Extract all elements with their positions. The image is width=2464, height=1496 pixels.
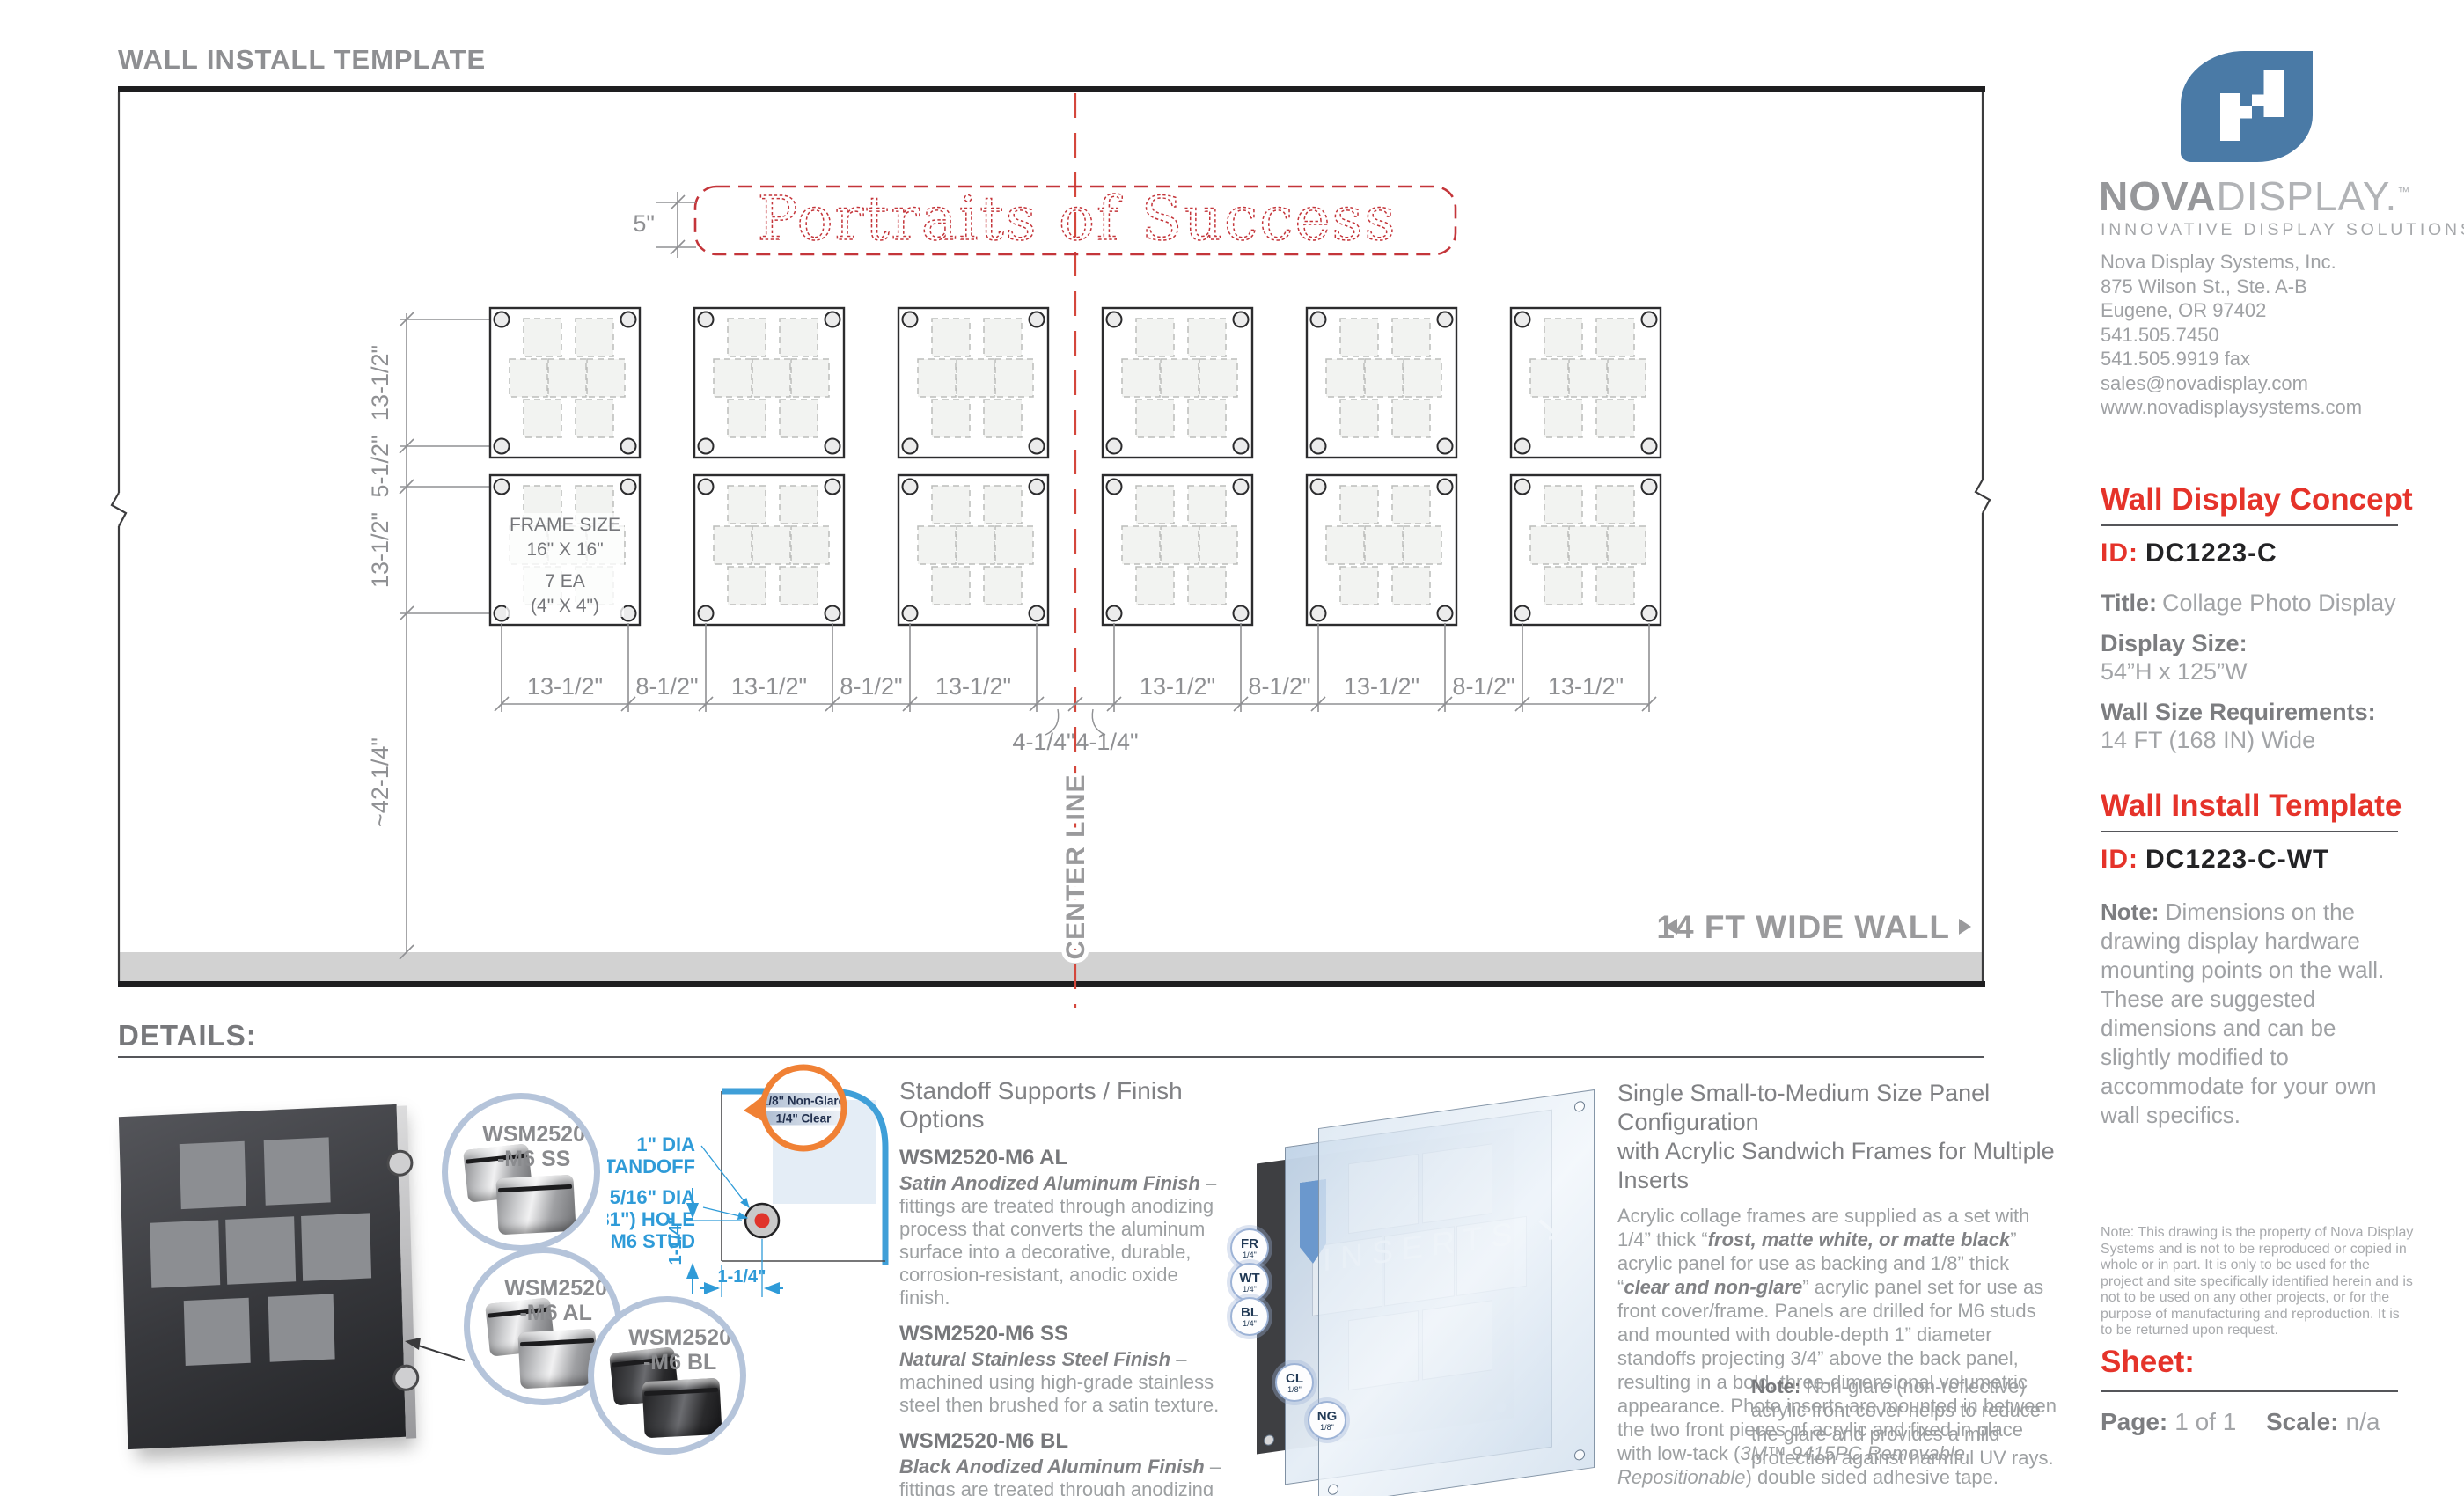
photo-insert xyxy=(932,567,970,605)
scale-indicator: Scale:n/a xyxy=(2266,1408,2380,1436)
photo-insert xyxy=(714,359,752,397)
dimension-label: 8-1/2" xyxy=(635,673,698,700)
standoff-callout: 1" DIA xyxy=(636,1133,695,1155)
front-panel xyxy=(1318,1089,1595,1496)
dimension-label: 4-1/4" xyxy=(1075,729,1138,755)
mounting-hole xyxy=(1234,312,1249,327)
collage-frame xyxy=(898,475,1048,625)
mounting-hole xyxy=(1107,312,1122,327)
mounting-hole xyxy=(1107,606,1122,621)
dimension-label: 13-1/2" xyxy=(1344,673,1419,700)
photo-insert xyxy=(1136,486,1174,524)
photo-insert xyxy=(752,526,790,564)
photo-insert xyxy=(1608,526,1646,564)
collage-frame xyxy=(1103,475,1252,625)
pointer-arrow xyxy=(396,1329,475,1373)
photo-insert xyxy=(932,486,970,524)
brand-tagline: INNOVATIVE DISPLAY SOLUTIONS xyxy=(2101,220,2464,240)
photo-insert xyxy=(1188,486,1226,524)
mounting-hole xyxy=(621,439,636,454)
break-mark-right xyxy=(1976,480,1990,513)
mounting-hole xyxy=(495,312,510,327)
product-code: WSM2520-M6 SS xyxy=(899,1322,1227,1346)
collage-frame xyxy=(694,308,844,458)
mounting-hole xyxy=(1642,606,1657,621)
mounting-hole xyxy=(1311,312,1326,327)
sidebar-divider xyxy=(2064,48,2064,1487)
address-line: 875 Wilson St., Ste. A-B xyxy=(2101,275,2362,299)
photo-insert xyxy=(728,567,766,605)
standoff-cap xyxy=(386,1149,414,1177)
sheet-heading: Sheet: xyxy=(2101,1345,2195,1380)
photo-insert xyxy=(1596,486,1634,524)
photo-insert xyxy=(791,359,829,397)
photo-insert xyxy=(510,359,547,397)
photo-insert xyxy=(1404,526,1441,564)
wall-width-label-group: 14 FT WIDE WALL xyxy=(1656,909,1971,945)
concept-id: ID:DC1223-C xyxy=(2101,539,2277,568)
photo-insert xyxy=(780,319,818,356)
photo-insert xyxy=(1340,319,1378,356)
company-address: Nova Display Systems, Inc. 875 Wilson St… xyxy=(2101,250,2362,420)
photo-insert xyxy=(1608,359,1646,397)
photo-insert xyxy=(932,400,970,437)
banner-text: Portraits of Success xyxy=(758,185,1397,254)
banner-group: Portraits of Success 5" xyxy=(633,185,1456,258)
collage-frame xyxy=(898,308,1048,458)
mounting-hole xyxy=(1642,439,1657,454)
photo-insert xyxy=(1122,526,1160,564)
photo-insert xyxy=(1122,359,1160,397)
website-link[interactable]: www.novadisplaysystems.com xyxy=(2101,395,2362,420)
email-link[interactable]: sales@novadisplay.com xyxy=(2101,371,2362,396)
mounting-hole xyxy=(699,606,714,621)
address-line: Eugene, OR 97402 xyxy=(2101,298,2362,323)
layer-badge-CL: CL1/8" xyxy=(1275,1363,1314,1402)
photo-insert xyxy=(1392,400,1430,437)
photo-insert xyxy=(1340,400,1378,437)
dimension-label: 13-1/2" xyxy=(1140,673,1215,700)
photo-insert xyxy=(752,359,790,397)
dimension-label: 13-1/2" xyxy=(527,673,603,700)
mounting-hole xyxy=(699,480,714,495)
mounting-hole xyxy=(1234,480,1249,495)
bubble-label: WSM2520 -M6 SS xyxy=(482,1122,585,1171)
mounting-hole xyxy=(1107,439,1122,454)
dim-horizontal: 1-1/4" xyxy=(717,1267,766,1287)
layer-badge-BL: BL1/4" xyxy=(1230,1297,1269,1336)
photo-insert xyxy=(1544,486,1582,524)
collage-frame xyxy=(1307,308,1456,458)
legal-note: Note: This drawing is the property of No… xyxy=(2101,1225,2414,1339)
mounting-hole xyxy=(1311,439,1326,454)
photo-insert xyxy=(918,526,956,564)
photo-insert xyxy=(728,319,766,356)
concept-heading: Wall Display Concept xyxy=(2101,482,2413,517)
collage-frame xyxy=(1307,475,1456,625)
mounting-hole xyxy=(825,480,840,495)
collage-frame xyxy=(1511,475,1661,625)
photo-insert xyxy=(728,486,766,524)
nova-display-logo xyxy=(2181,51,2313,162)
mounting-hole xyxy=(699,312,714,327)
photo-insert xyxy=(587,359,625,397)
photo-insert xyxy=(1569,526,1607,564)
photo-insert xyxy=(1136,400,1174,437)
layer-label: 1/8" Non-Glare xyxy=(762,1095,846,1108)
mounting-hole xyxy=(495,480,510,495)
svg-text:16" X 16": 16" X 16" xyxy=(526,539,603,560)
page-indicator: Page:1 of 1 xyxy=(2101,1408,2236,1436)
m6-stud xyxy=(755,1214,770,1228)
address-line: Nova Display Systems, Inc. xyxy=(2101,250,2362,275)
frame-annotation: FRAME SIZE 16" X 16" 7 EA (4" X 4") xyxy=(506,513,624,617)
standoff-bubble-ss: WSM2520 -M6 SS xyxy=(442,1093,600,1251)
layer-badge-FR: FR1/4" xyxy=(1230,1228,1269,1267)
dimension-label: 5-1/2" xyxy=(367,435,393,497)
photo-insert xyxy=(1199,526,1237,564)
mounting-hole xyxy=(825,312,840,327)
photo-insert xyxy=(1530,526,1568,564)
mounting-hole xyxy=(903,480,918,495)
dimension-label: 4-1/4" xyxy=(1012,729,1074,755)
standoff-photo xyxy=(642,1378,722,1439)
mounting-hole xyxy=(1438,312,1453,327)
photo-insert xyxy=(1596,400,1634,437)
standoff-bubble-bl: WSM2520 -M6 BL xyxy=(588,1296,746,1455)
mounting-hole xyxy=(1642,312,1657,327)
photo-insert xyxy=(524,400,561,437)
photo-insert xyxy=(1340,567,1378,605)
photo-insert xyxy=(780,567,818,605)
concept-title: Title:Collage Photo Display xyxy=(2101,590,2396,617)
photo-insert xyxy=(1404,359,1441,397)
install-note: Note: Dimensions on the drawing display … xyxy=(2101,898,2407,1130)
mounting-hole xyxy=(903,312,918,327)
photo-insert xyxy=(780,486,818,524)
uv-note: Note: Non-glare (non-reflective) acrylic… xyxy=(1751,1375,2057,1470)
dim-vertical: 1-1/4" xyxy=(666,1216,686,1265)
wall-width-label: 14 FT WIDE WALL xyxy=(1656,909,1950,945)
mounting-hole xyxy=(495,439,510,454)
arrow-right-icon xyxy=(1959,919,1971,935)
left-dimensions: 13-1/2" 5-1/2" 13-1/2" ~42-1/4" xyxy=(367,312,503,959)
mounting-hole xyxy=(1030,312,1045,327)
collage-frame xyxy=(1103,308,1252,458)
layer-badge-NG: NG1/8" xyxy=(1308,1401,1346,1440)
layer-label: 1/4" Clear xyxy=(776,1112,832,1126)
wall-size-value: 14 FT (168 IN) Wide xyxy=(2101,727,2315,754)
collage-panel-photo xyxy=(119,1104,406,1449)
bubble-label: WSM2520 -M6 AL xyxy=(504,1276,607,1325)
corner-diagram: 1" DIA STANDOFF 5/16" DIA (0.31") HOLE M… xyxy=(607,1060,911,1316)
mounting-hole xyxy=(825,606,840,621)
standoff-options-column: Standoff Supports / Finish Options WSM25… xyxy=(899,1077,1227,1496)
photo-insert xyxy=(576,319,613,356)
photo-insert xyxy=(1596,319,1634,356)
standoff-photo xyxy=(517,1329,598,1390)
photo-insert xyxy=(984,319,1022,356)
dimension-label: 8-1/2" xyxy=(840,673,902,700)
address-line: 541.505.9919 fax xyxy=(2101,347,2362,371)
photo-insert xyxy=(1544,567,1582,605)
mounting-hole xyxy=(1438,606,1453,621)
photo-insert xyxy=(957,526,994,564)
address-line: 541.505.7450 xyxy=(2101,323,2362,348)
photo-insert xyxy=(984,567,1022,605)
photo-insert xyxy=(791,526,829,564)
photo-insert xyxy=(1136,567,1174,605)
dimension-label: 13-1/2" xyxy=(1548,673,1624,700)
photo-insert xyxy=(1199,359,1237,397)
mounting-hole xyxy=(903,439,918,454)
photo-insert xyxy=(1161,359,1199,397)
photo-insert xyxy=(1188,400,1226,437)
photo-insert xyxy=(918,359,956,397)
mounting-hole xyxy=(1438,480,1453,495)
photo-insert xyxy=(1596,567,1634,605)
collage-frame xyxy=(694,475,844,625)
photo-insert xyxy=(995,526,1033,564)
banner-height-dim: 5" xyxy=(633,210,655,237)
mounting-hole xyxy=(1438,439,1453,454)
photo-insert xyxy=(548,359,586,397)
dimension-label: 13-1/2" xyxy=(935,673,1011,700)
svg-text:(4" X 4"): (4" X 4") xyxy=(531,596,599,616)
mounting-hole xyxy=(1515,606,1530,621)
photo-insert xyxy=(1188,567,1226,605)
photo-insert xyxy=(957,359,994,397)
photo-insert xyxy=(1544,319,1582,356)
product-code: WSM2520-M6 BL xyxy=(899,1429,1227,1454)
magnifier-pointer xyxy=(744,1094,766,1123)
mounting-hole xyxy=(1107,480,1122,495)
hole-callout: 5/16" DIA xyxy=(610,1186,695,1208)
svg-text:7 EA: 7 EA xyxy=(545,571,585,591)
section-title: Single Small-to-Medium Size Panel Config… xyxy=(1617,1079,2057,1195)
mounting-hole xyxy=(1234,439,1249,454)
mounting-hole xyxy=(1030,439,1045,454)
photo-insert xyxy=(1392,486,1430,524)
photo-insert xyxy=(728,400,766,437)
photo-insert xyxy=(1544,400,1582,437)
photo-insert xyxy=(984,400,1022,437)
mounting-hole xyxy=(1515,312,1530,327)
photo-insert xyxy=(995,359,1033,397)
mounting-hole xyxy=(1030,480,1045,495)
standoff-photo xyxy=(495,1175,576,1236)
brand-wordmark: NOVADISPLAY.™ xyxy=(2099,172,2410,220)
photo-insert xyxy=(1326,526,1364,564)
details-heading: DETAILS: xyxy=(118,1019,257,1052)
collage-frame xyxy=(1511,308,1661,458)
photo-insert xyxy=(576,400,613,437)
install-heading: Wall Install Template xyxy=(2101,788,2402,824)
photo-insert xyxy=(1326,359,1364,397)
layer-badge-WT: WT1/4" xyxy=(1230,1263,1269,1302)
display-size-value: 54”H x 125”W xyxy=(2101,658,2248,686)
dimension-label: 8-1/2" xyxy=(1248,673,1310,700)
photo-insert xyxy=(1136,319,1174,356)
dimension-label: 8-1/2" xyxy=(1452,673,1514,700)
photo-insert xyxy=(1188,319,1226,356)
dimension-label: ~42-1/4" xyxy=(367,737,393,827)
floor-band xyxy=(120,952,1984,981)
photo-insert xyxy=(1161,526,1199,564)
install-id: ID:DC1223-C-WT xyxy=(2101,845,2329,875)
photo-insert xyxy=(1392,567,1430,605)
product-code: WSM2520-M6 AL xyxy=(899,1146,1227,1170)
mounting-hole xyxy=(825,439,840,454)
collage-frame xyxy=(490,308,640,458)
mounting-hole xyxy=(621,480,636,495)
photo-insert xyxy=(1530,359,1568,397)
mounting-hole xyxy=(1642,480,1657,495)
bubble-label: WSM2520 -M6 BL xyxy=(628,1325,731,1375)
mounting-hole xyxy=(1030,606,1045,621)
svg-text:STANDOFF: STANDOFF xyxy=(607,1155,695,1177)
photo-insert xyxy=(780,400,818,437)
dimension-label: 13-1/2" xyxy=(367,345,393,421)
photo-insert xyxy=(1365,359,1403,397)
mounting-hole xyxy=(1515,439,1530,454)
photo-insert xyxy=(714,526,752,564)
break-mark-left xyxy=(112,493,126,526)
wall-drawing: CENTER LINE Portraits of Success 5" 13 xyxy=(0,0,2464,1021)
mounting-hole xyxy=(903,606,918,621)
mounting-hole xyxy=(1515,480,1530,495)
mounting-hole xyxy=(699,439,714,454)
section-title: Standoff Supports / Finish Options xyxy=(899,1077,1227,1133)
dimension-label: 13-1/2" xyxy=(731,673,807,700)
logo-n-icon xyxy=(2181,51,2313,162)
photo-insert xyxy=(1569,359,1607,397)
mounting-hole xyxy=(1234,606,1249,621)
photo-insert xyxy=(984,486,1022,524)
photo-insert xyxy=(524,319,561,356)
mounting-hole xyxy=(621,312,636,327)
svg-text:FRAME SIZE: FRAME SIZE xyxy=(510,515,620,535)
photo-insert xyxy=(1365,526,1403,564)
spec-sheet-page: WALL INSTALL TEMPLATE CENTER LINE Portra… xyxy=(0,0,2464,1496)
photo-insert xyxy=(1340,486,1378,524)
mounting-hole xyxy=(1311,606,1326,621)
mounting-hole xyxy=(1311,480,1326,495)
center-line-label: CENTER LINE xyxy=(1061,774,1090,959)
details-rule xyxy=(118,1056,1984,1058)
photo-insert xyxy=(1392,319,1430,356)
photo-insert xyxy=(932,319,970,356)
dimension-label: 13-1/2" xyxy=(367,512,393,588)
